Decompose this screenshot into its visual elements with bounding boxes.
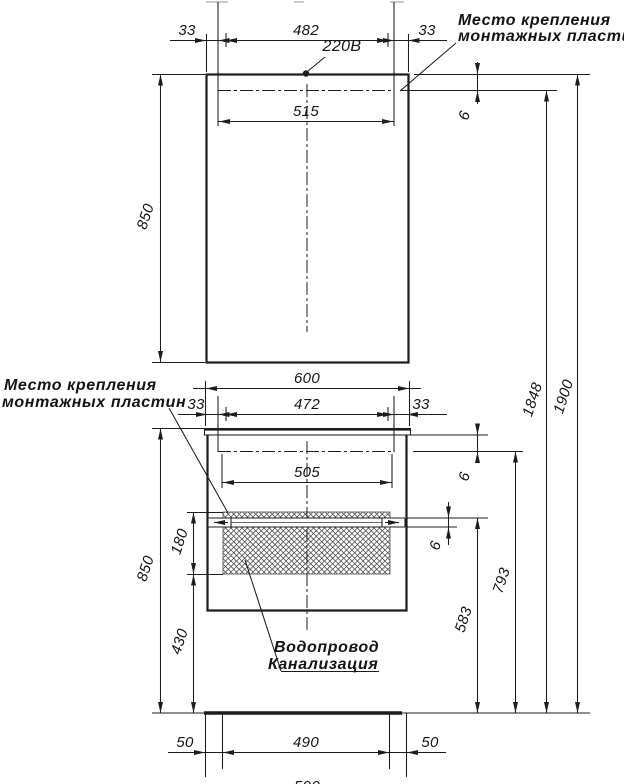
dim-vanity-counter-gap: 6 — [455, 470, 474, 484]
label-mount-plate-top-line2: монтажных пластин — [458, 28, 624, 45]
dim-vanity-offset-right: 33 — [412, 396, 430, 413]
label-mount-plate-left-line2: монтажных пластин — [2, 394, 186, 411]
mirror-dimensions: 33 482 33 515 850 6 — [134, 2, 590, 363]
dim-below-hatch: 430 — [168, 626, 192, 656]
dim-overall-total-height: 1900 — [550, 377, 577, 415]
mounting-plate-strip — [208, 518, 405, 527]
dim-vanity-width: 600 — [294, 370, 320, 387]
technical-drawing-page: 33 482 33 515 850 6 1848 1900 — [0, 0, 624, 784]
leader-mount-plate-left — [169, 408, 228, 513]
dim-mirror-height: 850 — [134, 201, 158, 231]
overall-dimensions: 1848 1900 — [519, 75, 577, 714]
dim-floor-offset-right: 50 — [421, 734, 439, 751]
label-mount-plate-left-line1: Место крепления — [4, 377, 157, 394]
power-outlet-leader — [308, 57, 325, 71]
label-mount-plate-top-line1: Место крепления — [458, 12, 611, 29]
dim-vanity-plate-width: 505 — [294, 464, 320, 481]
installation-drawing: 33 482 33 515 850 6 1848 1900 — [0, 0, 624, 784]
dim-vanity-height: 850 — [134, 553, 158, 583]
dim-mirror-plate-width: 515 — [293, 103, 319, 120]
dim-mirror-mount-span: 482 — [293, 22, 319, 39]
dim-floor-stud-span: 490 — [293, 734, 319, 751]
dim-mirror-offset-right: 33 — [418, 22, 436, 39]
label-plumbing-line2: Канализация — [268, 656, 378, 673]
label-plumbing-line1: Водопровод — [274, 639, 379, 656]
dim-hatch-height: 180 — [168, 526, 192, 556]
label-power-outlet: 220В — [322, 38, 362, 55]
dim-rail-floor-height: 793 — [490, 565, 514, 595]
dim-overall-mount-height: 1848 — [519, 380, 546, 418]
dim-floor-bottom-width: 590 — [294, 778, 320, 784]
dim-mirror-top-gap: 6 — [455, 109, 474, 123]
floor-and-bottom-dimensions: 50 490 50 590 — [152, 713, 590, 784]
dim-vanity-mount-span: 472 — [294, 396, 320, 413]
vanity-cabinet-outline — [204, 429, 411, 631]
dim-mirror-offset-left: 33 — [178, 22, 196, 39]
dim-plate-floor-height: 583 — [452, 604, 476, 634]
dim-floor-offset-left: 50 — [176, 734, 194, 751]
dim-vanity-offset-left: 33 — [187, 396, 205, 413]
dim-vanity-plate-gap: 6 — [426, 539, 445, 553]
